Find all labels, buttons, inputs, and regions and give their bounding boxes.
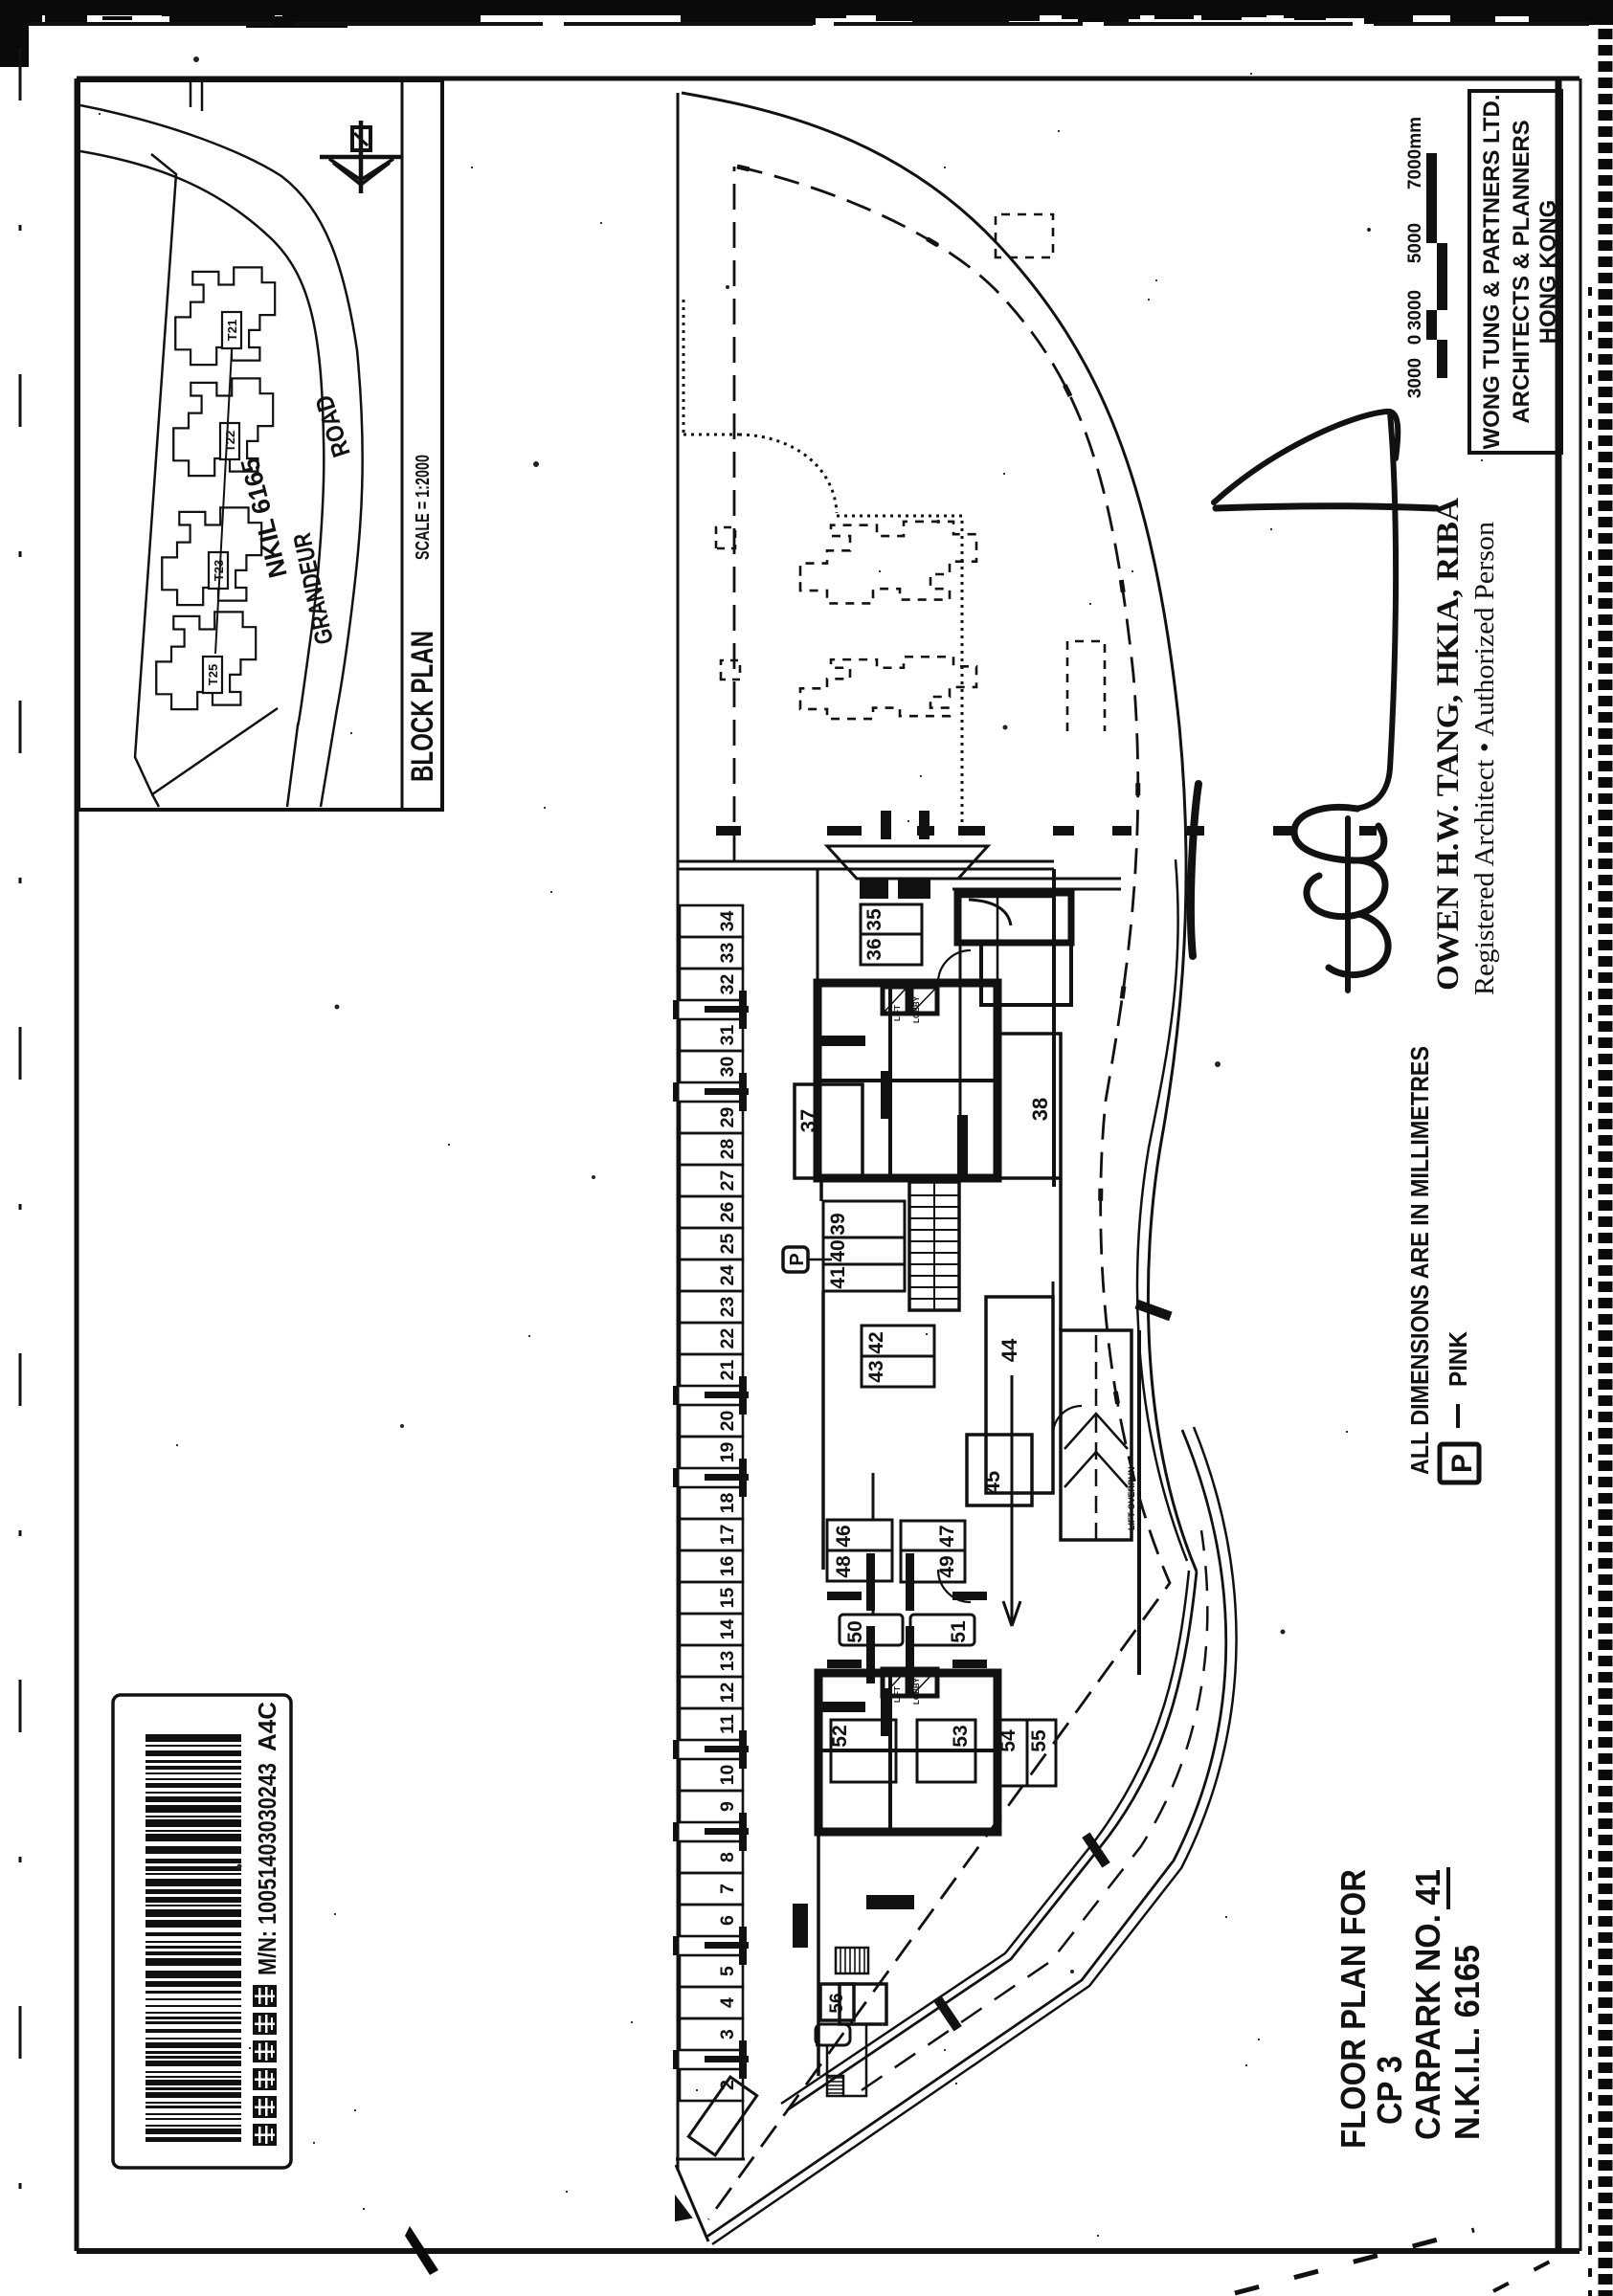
- svg-text:17: 17: [717, 1525, 738, 1546]
- svg-text:M/N: 10051403030243: M/N: 10051403030243: [253, 1763, 281, 1975]
- svg-text:ALL DIMENSIONS ARE IN MILL: ALL DIMENSIONS ARE IN MILLIMETRES: [1405, 1046, 1434, 1475]
- svg-text:32: 32: [717, 974, 738, 995]
- svg-text:LOBBY: LOBBY: [912, 995, 921, 1023]
- svg-text:LIFT OVERRUN: LIFT OVERRUN: [1127, 1467, 1136, 1531]
- svg-text:4: 4: [717, 1997, 738, 2008]
- svg-text:T25: T25: [206, 664, 220, 685]
- svg-text:16: 16: [717, 1556, 738, 1577]
- svg-text:5000: 5000: [1405, 223, 1425, 263]
- svg-text:21: 21: [717, 1360, 738, 1381]
- svg-text:5: 5: [717, 1966, 738, 1976]
- svg-text:15: 15: [717, 1588, 738, 1609]
- svg-text:P: P: [1446, 1454, 1478, 1473]
- svg-text:3000: 3000: [1405, 290, 1425, 330]
- svg-text:3: 3: [717, 2029, 738, 2040]
- svg-text:8: 8: [717, 1852, 738, 1862]
- svg-text:11: 11: [717, 1714, 738, 1734]
- svg-text:12: 12: [717, 1683, 738, 1704]
- svg-text:50: 50: [844, 1620, 866, 1642]
- svg-text:SCALE = 1:2000: SCALE = 1:2000: [413, 455, 434, 560]
- svg-text:LIFT: LIFT: [893, 1686, 902, 1703]
- svg-text:41: 41: [827, 1266, 849, 1289]
- svg-text:HONG KONG: HONG KONG: [1535, 200, 1561, 345]
- svg-text:Registered Architect • Authori: Registered Architect • Authorized Person: [1469, 521, 1500, 995]
- svg-text:44: 44: [997, 1338, 1021, 1362]
- svg-text:0: 0: [1405, 335, 1425, 346]
- svg-text:7: 7: [717, 1884, 738, 1894]
- svg-text:24: 24: [717, 1265, 738, 1286]
- svg-text:37: 37: [796, 1109, 820, 1132]
- svg-text:23: 23: [717, 1297, 738, 1318]
- svg-text:31: 31: [717, 1025, 738, 1046]
- svg-text:54: 54: [997, 1729, 1019, 1752]
- svg-text:LOBBY: LOBBY: [912, 1677, 921, 1705]
- svg-text:45: 45: [980, 1471, 1004, 1494]
- svg-text:27: 27: [717, 1170, 738, 1192]
- svg-text:56: 56: [827, 1993, 847, 2013]
- svg-text:48: 48: [833, 1555, 855, 1578]
- svg-text:36: 36: [863, 938, 885, 960]
- svg-text:18: 18: [717, 1493, 738, 1514]
- svg-text:34: 34: [717, 911, 738, 932]
- svg-text:19: 19: [717, 1442, 738, 1463]
- svg-text:13: 13: [717, 1651, 738, 1672]
- svg-text:39: 39: [827, 1213, 849, 1235]
- svg-text:52: 52: [829, 1725, 851, 1747]
- svg-text:22: 22: [717, 1328, 738, 1349]
- svg-text:BLOCK PLAN: BLOCK PLAN: [405, 631, 439, 782]
- svg-text:25: 25: [717, 1234, 738, 1255]
- svg-text:CARPARK NO. 41: CARPARK NO. 41: [1408, 1869, 1447, 2140]
- svg-text:T21: T21: [225, 320, 239, 341]
- svg-text:14: 14: [717, 1619, 738, 1640]
- svg-text:28: 28: [717, 1139, 738, 1160]
- svg-text:N.K.I.L. 6165: N.K.I.L. 6165: [1447, 1945, 1487, 2140]
- svg-text:WONG TUNG & PARTNERS LTD.: WONG TUNG & PARTNERS LTD.: [1479, 94, 1505, 449]
- svg-text:LIFT: LIFT: [893, 1005, 902, 1021]
- svg-text:43: 43: [865, 1360, 887, 1382]
- svg-text:CP 3: CP 3: [1370, 2056, 1409, 2125]
- svg-text:P: P: [787, 1253, 808, 1265]
- svg-text:10: 10: [717, 1765, 738, 1786]
- svg-text:47: 47: [936, 1525, 958, 1547]
- svg-text:ARCHITECTS & PLANNERS: ARCHITECTS & PLANNERS: [1509, 120, 1535, 423]
- svg-text:30: 30: [717, 1057, 738, 1078]
- svg-text:FLOOR PLAN FOR: FLOOR PLAN FOR: [1333, 1869, 1373, 2149]
- svg-text:26: 26: [717, 1202, 738, 1223]
- svg-text:PINK: PINK: [1444, 1331, 1472, 1387]
- svg-text:3000: 3000: [1405, 358, 1425, 398]
- svg-text:42: 42: [865, 1331, 887, 1353]
- svg-text:29: 29: [717, 1107, 738, 1128]
- svg-text:51: 51: [948, 1620, 970, 1643]
- svg-text:7000mm: 7000mm: [1405, 117, 1425, 189]
- svg-text:6: 6: [717, 1915, 738, 1926]
- svg-text:33: 33: [717, 943, 738, 964]
- svg-text:T22: T22: [223, 431, 237, 452]
- svg-text:55: 55: [1028, 1729, 1050, 1752]
- svg-text:53: 53: [950, 1725, 972, 1747]
- svg-text:35: 35: [863, 908, 885, 931]
- svg-text:38: 38: [1028, 1098, 1052, 1121]
- svg-text:A4C: A4C: [253, 1702, 281, 1751]
- svg-text:20: 20: [717, 1411, 738, 1432]
- svg-text:9: 9: [717, 1801, 738, 1812]
- svg-text:OWEN H.W. TANG, HKIA, RIBA: OWEN H.W. TANG, HKIA, RIBA: [1431, 498, 1466, 991]
- svg-text:46: 46: [833, 1525, 855, 1547]
